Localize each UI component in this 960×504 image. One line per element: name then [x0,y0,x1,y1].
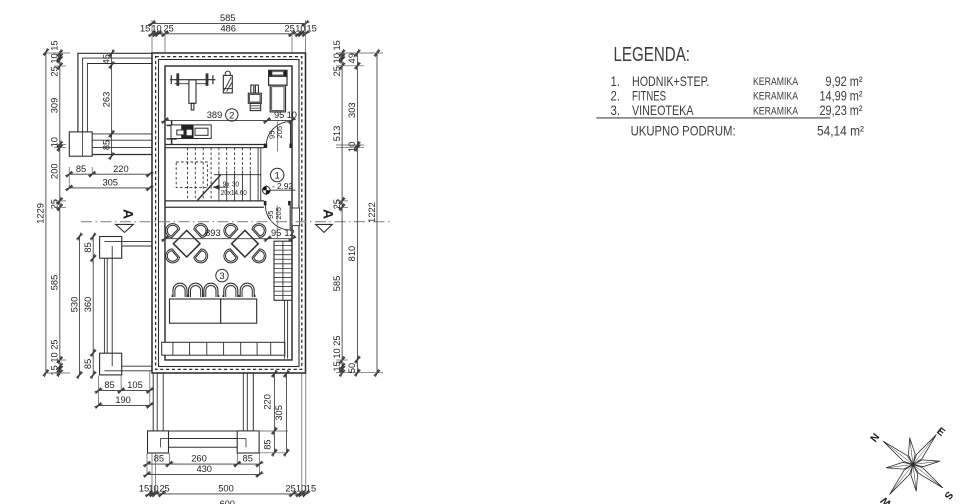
svg-text:VINEOTEKA: VINEOTEKA [632,102,694,118]
svg-text:KERAMIKA: KERAMIKA [753,91,799,103]
svg-text:25 10 15: 25 10 15 [50,40,60,76]
svg-text:2.: 2. [611,89,621,104]
svg-text:45: 45 [101,54,111,64]
svg-text:10: 10 [50,137,60,147]
svg-text:85: 85 [83,242,93,252]
svg-text:15: 15 [306,484,316,494]
svg-text:893: 893 [205,228,221,238]
svg-text:389: 389 [207,110,223,120]
svg-text:FITNES: FITNES [632,88,666,104]
svg-text:HODNIK+STEP.: HODNIK+STEP. [632,73,709,89]
svg-text:200: 200 [50,163,60,179]
svg-text:KERAMIKA: KERAMIKA [753,76,799,88]
svg-text:12: 12 [284,228,294,238]
svg-text:A: A [120,209,136,219]
svg-text:10: 10 [287,110,297,120]
svg-text:95: 95 [271,228,281,238]
svg-text:309: 309 [50,98,60,114]
svg-text:95: 95 [274,110,284,120]
svg-text:10: 10 [296,484,306,494]
svg-text:205: 205 [275,126,284,139]
svg-text:220: 220 [113,164,129,174]
svg-text:303: 303 [347,102,357,118]
svg-text:600: 600 [219,499,235,504]
svg-text:205: 205 [274,207,283,220]
svg-text:305: 305 [274,405,284,421]
svg-text:54,14 m²: 54,14 m² [817,123,864,139]
svg-text:LEGENDA:: LEGENDA: [614,44,691,66]
svg-text:190: 190 [115,395,131,405]
svg-text:15: 15 [140,23,150,33]
svg-text:UKUPNO PODRUM:: UKUPNO PODRUM: [631,123,736,139]
svg-text:360: 360 [83,297,93,313]
svg-text:49: 49 [347,53,357,63]
svg-text:2: 2 [229,110,234,121]
svg-text:3.: 3. [611,103,621,118]
svg-text:486: 486 [220,23,236,33]
svg-text:810: 810 [347,246,357,262]
svg-text:305: 305 [102,178,118,188]
svg-text:3: 3 [219,271,224,282]
svg-text:220: 220 [262,394,272,410]
svg-text:1: 1 [275,171,280,182]
svg-text:85: 85 [101,140,111,150]
svg-text:10: 10 [151,23,161,33]
svg-text:15 10 25: 15 10 25 [332,335,342,371]
svg-text:50: 50 [347,363,357,373]
svg-text:9,92 m²: 9,92 m² [826,73,863,89]
svg-text:25 10 15: 25 10 15 [332,40,342,76]
svg-text:25: 25 [285,484,295,494]
svg-text:530: 530 [69,297,79,313]
svg-text:263: 263 [101,92,111,108]
svg-text:10: 10 [148,484,158,494]
svg-text:14,99 m²: 14,99 m² [820,88,863,104]
svg-text:1222: 1222 [367,202,377,223]
svg-text:- 2.92: - 2.92 [272,182,293,191]
svg-text:25: 25 [50,199,60,209]
svg-text:KERAMIKA: KERAMIKA [753,105,799,117]
svg-text:29,23 m²: 29,23 m² [820,102,863,118]
svg-text:25: 25 [332,199,342,209]
svg-text:25: 25 [285,23,295,33]
svg-text:85: 85 [263,439,273,449]
svg-text:513: 513 [332,126,342,142]
svg-text:85: 85 [104,380,114,390]
svg-text:A: A [321,209,337,219]
svg-text:25: 25 [159,484,169,494]
svg-text:85: 85 [76,164,86,174]
svg-text:585: 585 [220,13,236,23]
svg-text:85: 85 [83,359,93,369]
svg-text:585: 585 [332,276,342,292]
svg-text:260: 260 [191,454,207,464]
svg-text:500: 500 [218,484,234,494]
svg-text:1229: 1229 [36,203,46,224]
svg-text:15: 15 [307,23,317,33]
svg-text:585: 585 [50,275,60,291]
svg-text:10: 10 [347,142,357,152]
svg-text:85: 85 [243,454,253,464]
svg-text:20x14.60: 20x14.60 [221,188,247,197]
svg-text:15 10 25: 15 10 25 [50,339,60,375]
svg-text:10: 10 [295,23,305,33]
svg-text:430: 430 [196,464,212,474]
svg-text:105: 105 [127,380,143,390]
svg-text:1.: 1. [611,74,621,89]
